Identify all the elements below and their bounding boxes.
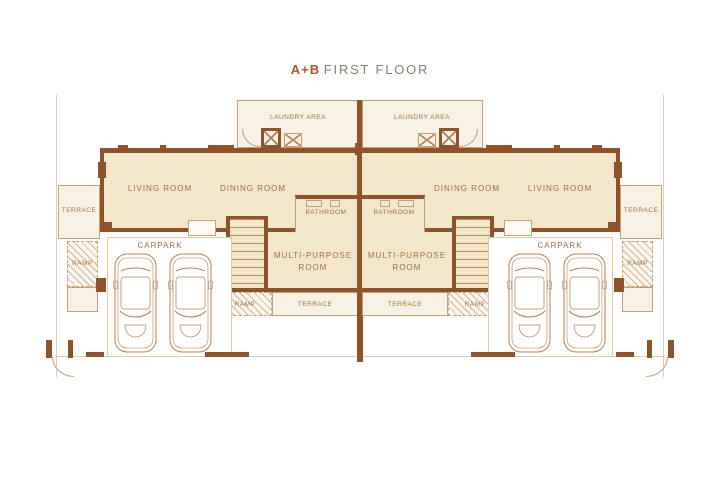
- boundary-left: [56, 95, 57, 377]
- car-icon: [507, 251, 552, 360]
- wall-pillar: [98, 162, 106, 178]
- gate-post: [647, 340, 652, 358]
- fence-segment: [471, 352, 515, 357]
- gate-post: [46, 340, 52, 358]
- fence-segment: [86, 352, 104, 357]
- wall-pillar: [614, 278, 624, 292]
- washer-icon: [261, 128, 281, 148]
- dryer-icon: [284, 133, 302, 147]
- landing-left: [67, 287, 98, 312]
- laundry-area-right-label: LAUNDRY AREA: [372, 113, 472, 122]
- landing-right: [622, 287, 653, 312]
- entry-step-right: [504, 220, 532, 236]
- multi-purpose-left-label: MULTI-PURPOSE ROOM: [273, 250, 353, 273]
- terrace-side-left-label: TERRACE: [59, 206, 99, 215]
- living-room-right-label: LIVING ROOM: [505, 183, 615, 195]
- wall-pillar: [100, 222, 112, 232]
- washer-icon: [439, 128, 459, 148]
- floor-name: FIRST FLOOR: [324, 62, 430, 77]
- ramp-side-left-label: RAMP: [68, 259, 97, 268]
- dining-room-left-label: DINING ROOM: [198, 183, 308, 195]
- entry-step-left: [188, 220, 216, 236]
- car-icon: [113, 251, 158, 360]
- floor-plan-page: A+B FIRST FLOOR LAUNDRY AREA LIVING ROOM…: [0, 0, 720, 480]
- wall-pillar: [614, 162, 622, 178]
- carpark-left-label: CARPARK: [110, 240, 210, 252]
- toilet-icon: [330, 200, 340, 207]
- wall-pillar: [486, 145, 512, 153]
- fence-segment: [616, 352, 634, 357]
- wall-pillar: [554, 145, 560, 153]
- page-title: A+B FIRST FLOOR: [0, 62, 720, 77]
- terrace-bottom-left-label: TERRACE: [277, 300, 353, 309]
- multi-purpose-right-label: MULTI-PURPOSE ROOM: [367, 250, 447, 273]
- wall-pillar: [160, 145, 166, 153]
- car-icon: [168, 251, 213, 360]
- carpark-right-label: CARPARK: [510, 240, 610, 252]
- bathroom-right-label: BATHROOM: [364, 208, 424, 217]
- sink-icon: [398, 200, 414, 207]
- gate-post: [668, 340, 674, 358]
- ramp-side-right-label: RAMP: [623, 259, 652, 268]
- wall-pillar: [96, 278, 106, 292]
- dryer-icon: [418, 133, 436, 147]
- wall-pillar: [592, 145, 602, 153]
- toilet-icon: [380, 200, 390, 207]
- staircase-left: [226, 216, 268, 292]
- laundry-area-left-label: LAUNDRY AREA: [248, 113, 348, 122]
- unit-code: A+B: [291, 62, 320, 77]
- terrace-side-right-label: TERRACE: [621, 206, 661, 215]
- fence-segment: [205, 352, 249, 357]
- wall-pillar: [608, 222, 620, 232]
- boundary-right: [663, 95, 664, 377]
- sink-icon: [306, 200, 322, 207]
- wall-pillar: [208, 145, 234, 153]
- gate-swing-arc-right: [646, 357, 668, 377]
- wall-pillar: [118, 145, 128, 153]
- bathroom-left-label: BATHROOM: [296, 208, 356, 217]
- terrace-bottom-right-label: TERRACE: [367, 300, 443, 309]
- gate-post: [68, 340, 73, 358]
- car-icon: [562, 251, 607, 360]
